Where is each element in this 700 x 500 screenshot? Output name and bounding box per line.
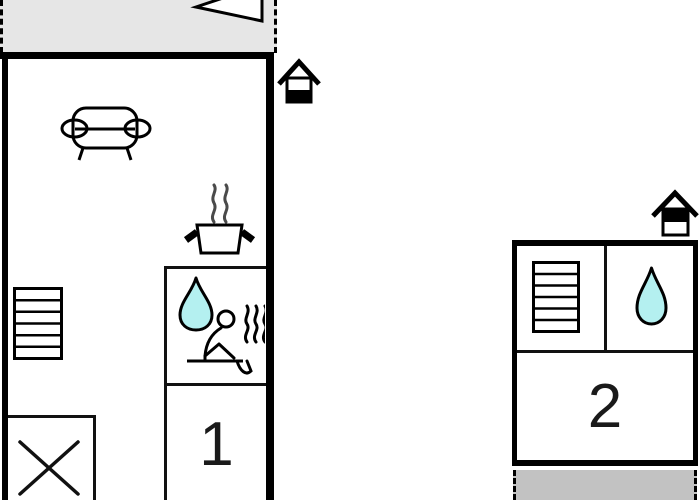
stairs-icon xyxy=(532,261,580,333)
unit1-wall-bathroom-bottom xyxy=(164,383,266,386)
unit2-wall-bottom xyxy=(512,460,698,466)
unit1-wall-bathroom-top xyxy=(164,266,266,269)
floorplan-canvas: 1 2 xyxy=(0,0,700,500)
unit2-wall-divider-vertical xyxy=(604,246,607,353)
sofa-icon xyxy=(58,100,153,162)
house-ground-floor-icon xyxy=(277,56,321,104)
unit1-wall-top xyxy=(0,52,274,59)
stairs-icon xyxy=(13,287,63,360)
terrace-bottom xyxy=(513,470,697,500)
unit1-wall-right xyxy=(266,52,274,500)
unit1-label: 1 xyxy=(167,390,266,500)
unit1-number: 1 xyxy=(199,414,233,476)
cross-icon xyxy=(8,418,93,500)
unit2-wall-right xyxy=(693,240,698,466)
sauna-person-icon xyxy=(185,300,265,380)
unit2-label: 2 xyxy=(517,353,693,460)
water-drop-icon xyxy=(635,266,668,326)
house-upper-floor-icon xyxy=(651,188,699,238)
direction-arrow-icon xyxy=(188,0,268,26)
cooking-pot-steam-icon xyxy=(183,182,255,257)
unit2-number: 2 xyxy=(588,376,622,438)
unit1-wall-crossarea-right xyxy=(93,415,96,500)
